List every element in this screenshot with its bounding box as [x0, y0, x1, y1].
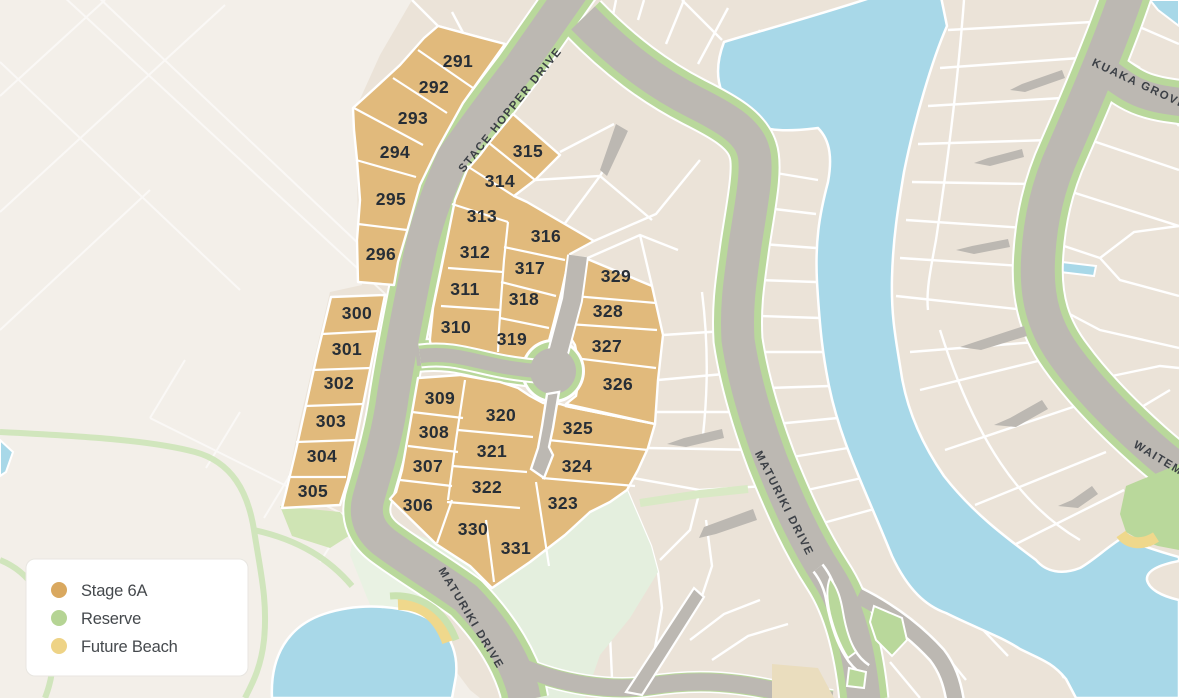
svg-text:327: 327	[592, 336, 622, 356]
svg-text:312: 312	[460, 242, 490, 262]
svg-text:294: 294	[380, 142, 410, 162]
svg-text:291: 291	[443, 51, 473, 71]
svg-text:Stage 6A: Stage 6A	[81, 582, 147, 600]
svg-text:330: 330	[458, 519, 488, 539]
svg-text:305: 305	[298, 481, 328, 501]
svg-text:325: 325	[563, 418, 593, 438]
svg-text:329: 329	[601, 266, 631, 286]
svg-text:Reserve: Reserve	[81, 610, 141, 628]
svg-text:319: 319	[497, 329, 527, 349]
svg-text:323: 323	[548, 493, 578, 513]
svg-text:324: 324	[562, 456, 592, 476]
svg-text:311: 311	[450, 279, 479, 299]
svg-text:295: 295	[376, 189, 406, 209]
svg-text:321: 321	[477, 441, 507, 461]
svg-text:320: 320	[486, 405, 516, 425]
svg-text:322: 322	[472, 477, 502, 497]
svg-text:300: 300	[342, 303, 372, 323]
svg-text:Future Beach: Future Beach	[81, 638, 178, 656]
svg-text:310: 310	[441, 317, 471, 337]
svg-text:313: 313	[467, 206, 497, 226]
svg-text:315: 315	[513, 141, 543, 161]
svg-text:303: 303	[316, 411, 346, 431]
svg-text:331: 331	[501, 538, 531, 558]
svg-text:296: 296	[366, 244, 396, 264]
svg-text:326: 326	[603, 374, 633, 394]
svg-text:318: 318	[509, 289, 539, 309]
svg-text:293: 293	[398, 108, 428, 128]
svg-text:304: 304	[307, 446, 337, 466]
svg-text:306: 306	[403, 495, 433, 515]
svg-text:316: 316	[531, 226, 561, 246]
svg-text:308: 308	[419, 422, 449, 442]
svg-text:328: 328	[593, 301, 623, 321]
svg-text:302: 302	[324, 373, 354, 393]
svg-text:314: 314	[485, 171, 515, 191]
svg-text:292: 292	[419, 77, 449, 97]
svg-text:317: 317	[515, 258, 545, 278]
svg-text:307: 307	[413, 456, 443, 476]
svg-text:309: 309	[425, 388, 455, 408]
svg-text:301: 301	[332, 339, 362, 359]
